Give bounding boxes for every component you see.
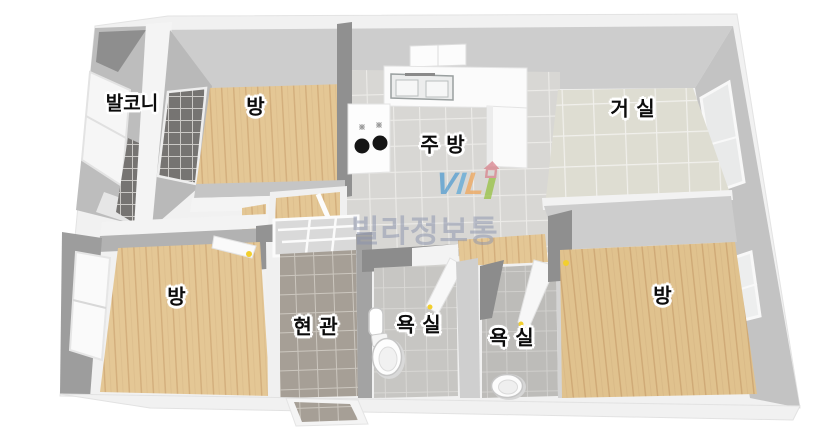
sink-icon [369,308,383,336]
door-handle [246,251,252,257]
stove-burner [355,139,370,154]
floor-plan: V I L 빌라정보통 발코니 방 주 방 거 실 방 현 관 욕 실 욕 실 … [0,0,840,448]
room-label-entrance: 현 관 [293,311,338,340]
door-handle [563,260,569,266]
room-label-living-room: 거 실 [610,93,655,122]
stove-burner [373,136,388,151]
bedroom-left-floor [100,242,270,396]
room-label-bathroom-2: 욕 실 [489,322,534,351]
kitchen-sink [391,73,453,100]
bedroom-left-window [70,252,110,360]
bath-divider-wall [456,258,480,398]
bedroom-top-floor [196,84,345,186]
entrance-step [286,398,368,426]
room-label-bedroom-top: 방 [246,91,265,120]
room-label-bedroom-right: 방 [653,280,672,309]
room-label-bathroom-1: 욕 실 [396,309,441,338]
range-hood [410,44,466,67]
room-label-balcony: 발코니 [106,89,158,116]
entrance-area [274,216,372,398]
stove [348,104,390,174]
room-label-kitchen: 주 방 [420,129,465,158]
floor-plan-canvas [0,0,840,448]
bedroom-right-floor [560,242,757,398]
room-label-bedroom-left: 방 [167,281,186,310]
bedroom-right-area [542,190,757,398]
